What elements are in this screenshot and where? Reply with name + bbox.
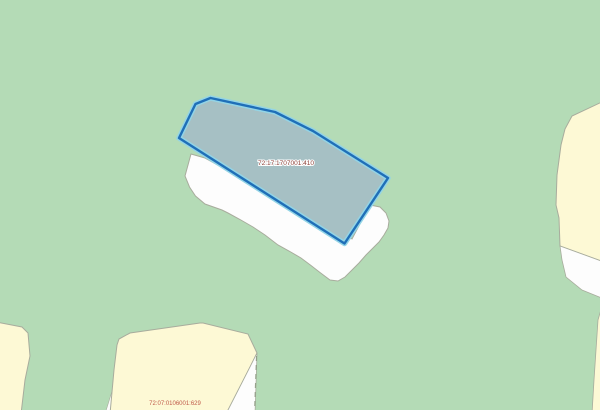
- svg-text:72:07:0106001:629: 72:07:0106001:629: [149, 401, 201, 407]
- svg-text:72:17:1707001:410: 72:17:1707001:410: [258, 160, 314, 167]
